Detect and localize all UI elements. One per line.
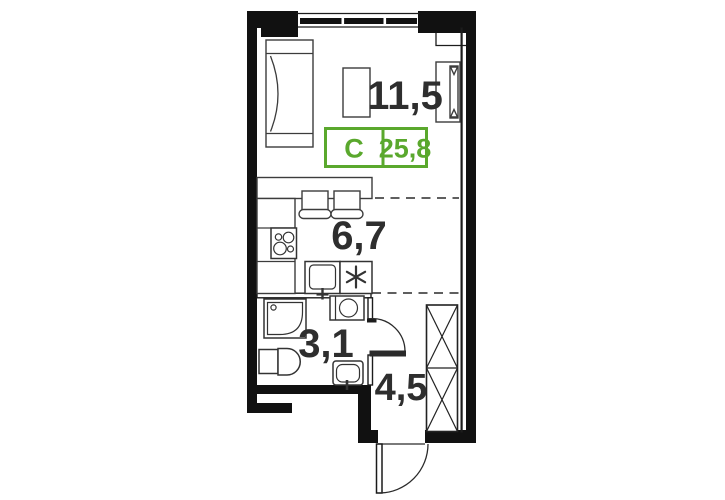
entrance-door-swing-arc (380, 444, 429, 493)
bathroom-door-leaf (370, 351, 407, 357)
side-table (343, 68, 370, 117)
wall-bottom-left-foot (247, 403, 292, 413)
bathroom-door-swing-arc (372, 319, 405, 352)
toilet-bowl (278, 349, 300, 376)
kitchen-area-label: 6,7 (331, 214, 387, 258)
wall-right-inner-line (461, 28, 463, 433)
window-frame-band (300, 18, 417, 24)
total-area-badge: C 25,8 (326, 129, 432, 167)
partition-bathroom-right-lower (368, 355, 373, 385)
kitchen: 6,7 (257, 178, 387, 300)
sofa (266, 40, 313, 147)
window (296, 14, 420, 28)
toilet-tank (259, 350, 278, 374)
wall-bathroom-bottom (257, 385, 371, 394)
apartment-type-label: C (344, 134, 364, 164)
partition-bathroom-right-upper (368, 298, 373, 319)
wall-right-outer (466, 11, 476, 443)
wall-top-left-step (261, 27, 298, 37)
floor-plan: 11,5 6,7 (0, 0, 725, 500)
stool-seat (299, 210, 331, 219)
hallway-area-label: 4,5 (375, 367, 428, 409)
hallway: 4,5 (375, 305, 458, 493)
wall-bottom-left-segment (358, 430, 378, 443)
window-mullion-gap (384, 17, 387, 25)
living-area-label: 11,5 (367, 74, 443, 118)
entrance-door-leaf (377, 444, 383, 493)
floor-plan-drawing: 11,5 6,7 (0, 0, 725, 500)
total-area-value: 25,8 (379, 134, 432, 164)
bathroom-area-label: 3,1 (298, 322, 354, 366)
window-mullion-gap (342, 17, 345, 25)
wall-left (247, 11, 257, 413)
